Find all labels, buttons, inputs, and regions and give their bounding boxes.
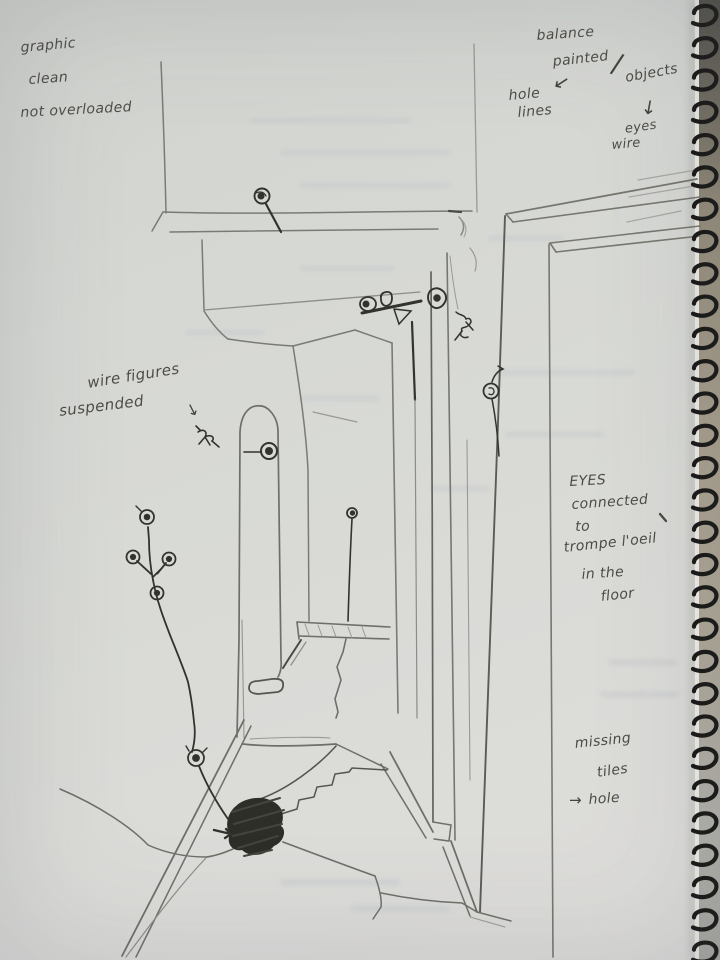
note-hole: hole bbox=[508, 85, 541, 104]
spiral-coil bbox=[693, 70, 716, 89]
spiral-coil bbox=[693, 555, 716, 574]
notebook-photo: graphic clean not overloaded balance pai… bbox=[0, 0, 720, 960]
note-clean: clean bbox=[28, 69, 69, 88]
spiral-coil bbox=[693, 38, 716, 57]
note-lines: lines bbox=[517, 102, 553, 121]
spiral-coil bbox=[693, 846, 716, 865]
eye-on-ledge bbox=[255, 189, 282, 233]
note-wire: wire bbox=[611, 135, 641, 152]
spiral-coil bbox=[693, 6, 716, 25]
spiral-coil bbox=[693, 813, 716, 832]
hanging-wire-figure bbox=[455, 312, 473, 340]
spiral-coil bbox=[693, 878, 716, 897]
spiral-coil bbox=[693, 103, 716, 122]
note-eyes-caps: EYES bbox=[569, 472, 607, 490]
spiral-coil bbox=[693, 135, 716, 154]
wire-flower bbox=[127, 506, 229, 819]
spiral-coil bbox=[693, 232, 716, 251]
spiral-coil bbox=[693, 749, 716, 768]
spiral-coil bbox=[693, 587, 716, 606]
spiral-coil bbox=[693, 716, 716, 735]
spiral-coil bbox=[693, 200, 716, 219]
door-frame bbox=[431, 179, 700, 957]
spiral-coil bbox=[693, 523, 716, 542]
eye-in-arch bbox=[261, 443, 277, 459]
eye-on-stem bbox=[347, 508, 357, 621]
spiral-coil bbox=[693, 620, 716, 639]
spiral-coil bbox=[693, 393, 716, 412]
floor-and-cracks bbox=[60, 720, 511, 957]
bench bbox=[249, 622, 390, 718]
note-to: to bbox=[575, 518, 590, 535]
top-wall-panel bbox=[152, 44, 477, 237]
spiral-coil bbox=[693, 943, 716, 960]
wire-figure-suspended bbox=[196, 426, 219, 447]
spiral-coil bbox=[693, 329, 716, 348]
arrow-right-icon: → bbox=[569, 791, 582, 809]
spiral-coil bbox=[693, 652, 716, 671]
spiral-coil bbox=[693, 490, 716, 509]
spiral-coil bbox=[693, 264, 716, 283]
perch-bar-eyes bbox=[360, 292, 421, 718]
spiral-coil bbox=[693, 426, 716, 445]
spiral-coil bbox=[693, 781, 716, 800]
spiral-coil bbox=[693, 684, 716, 703]
spiral-coil bbox=[693, 297, 716, 316]
spiral-coil bbox=[693, 458, 716, 477]
corridor-upper-walls bbox=[202, 240, 476, 713]
spiral-coils bbox=[693, 6, 716, 960]
note-in-the: in the bbox=[581, 564, 625, 583]
floor-hole bbox=[214, 798, 284, 856]
note-hole-target: hole bbox=[588, 790, 621, 808]
spiral-coil bbox=[693, 910, 716, 929]
spiral-coil bbox=[693, 167, 716, 186]
misc-marks bbox=[627, 170, 696, 521]
spiral-coil bbox=[693, 361, 716, 380]
